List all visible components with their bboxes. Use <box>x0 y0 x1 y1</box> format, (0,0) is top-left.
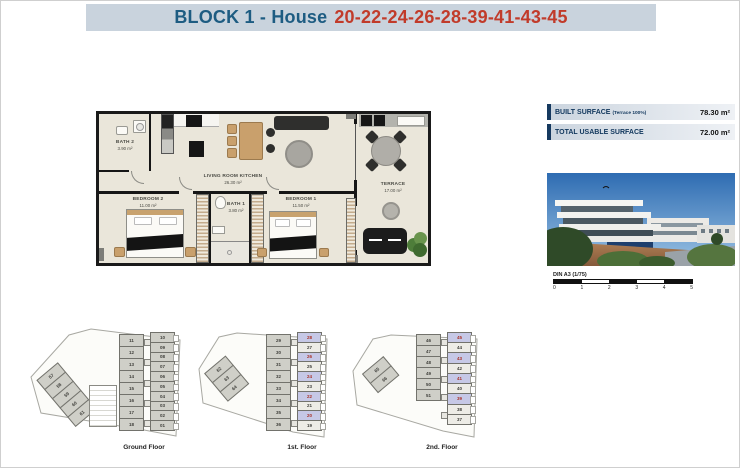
unit-51: 51 <box>416 389 441 401</box>
bed <box>126 209 184 258</box>
terrace-panel <box>397 116 425 126</box>
washer-icon <box>133 120 146 133</box>
page-title: BLOCK 1 - House <box>174 7 327 28</box>
main-floor-plan: BATH 2 3.90 m² LIVING ROOM KITCHEN 26.30… <box>96 111 431 266</box>
garage-ramp <box>89 385 117 427</box>
dining-chair <box>227 124 237 134</box>
floor-plan-first: 626364 2930313233343536 2827262524232221… <box>197 327 347 457</box>
header-bar: BLOCK 1 - House 20-22-24-26-28-39-41-43-… <box>86 4 656 31</box>
surface-label: BUILT SURFACE (Terrace 100%) <box>555 109 646 116</box>
scale-segment <box>637 280 665 283</box>
pillow <box>134 217 152 225</box>
shower-drain <box>227 250 232 255</box>
bath-sink-icon <box>212 226 225 234</box>
building-photo <box>547 173 735 266</box>
wall <box>149 114 151 171</box>
surface-row-usable: TOTAL USABLE SURFACE 72.00 m² <box>547 124 735 140</box>
dining-chair <box>227 136 237 146</box>
scale-segment <box>554 280 582 283</box>
dining-chair <box>266 144 275 153</box>
room-area: 3.90 m² <box>103 146 147 151</box>
pillow <box>159 217 177 225</box>
room-area: 11.00 m² <box>125 203 171 208</box>
floor-plan-ground: 5758596061 1112131415161718 100908070605… <box>29 327 191 457</box>
unit-19: 19 <box>297 420 322 431</box>
dining-chair <box>227 148 237 158</box>
scale-tick: 0 <box>553 285 556 291</box>
headboard <box>127 210 183 215</box>
sink-icon <box>116 126 128 135</box>
scale-tick: 3 <box>635 285 638 291</box>
terrace-pouf <box>382 202 400 220</box>
room-name: LIVING ROOM KITCHEN <box>203 174 263 180</box>
scale-tick: 2 <box>608 285 611 291</box>
room-bath2: BATH 2 3.90 m² <box>103 140 147 151</box>
bed-throw <box>126 234 184 251</box>
sofa-cushion-line <box>388 239 401 241</box>
scale-segment <box>582 280 610 283</box>
wall <box>279 191 356 194</box>
floor-label: Ground Floor <box>99 444 189 451</box>
pillar <box>346 114 356 119</box>
terrace-table-set <box>367 132 405 170</box>
plant-icon <box>405 230 429 258</box>
room-area: 11.50 m² <box>277 203 325 208</box>
door-arc <box>266 177 279 190</box>
round-table <box>285 140 313 168</box>
unit-column-right: 454443424140393837 <box>447 333 472 425</box>
door-arc <box>179 177 192 190</box>
ac-unit-icon <box>374 115 385 126</box>
unit-column-left: 464748495051 <box>416 335 441 401</box>
sofa-cushion-line <box>369 239 382 241</box>
unit-18: 18 <box>119 418 144 431</box>
room-bedroom1: BEDROOM 1 11.50 m² <box>277 197 325 208</box>
floor-label: 1st. Floor <box>257 444 347 451</box>
pillow <box>275 219 290 227</box>
scale-bar: DIN A3 (1/75) 0 1 2 3 4 5 <box>553 272 693 291</box>
room-area: 26.30 m² <box>203 180 263 185</box>
room-area: 3.80 m² <box>221 208 251 213</box>
surface-label-note: (Terrace 100%) <box>612 111 646 116</box>
room-terrace: TERRACE 17.00 m² <box>371 182 415 193</box>
unit-column-left: 1112131415161718 <box>119 335 144 431</box>
scale-tick: 4 <box>663 285 666 291</box>
nightstand <box>185 247 196 257</box>
scale-segment <box>609 280 637 283</box>
floor-label: 2nd. Floor <box>397 444 487 451</box>
scale-segment <box>664 280 692 283</box>
wardrobe <box>196 194 209 263</box>
kitchen-island <box>189 141 204 157</box>
pillar <box>99 248 104 261</box>
shower <box>211 241 249 261</box>
room-living: LIVING ROOM KITCHEN 26.30 m² <box>203 174 263 185</box>
terrace-table <box>371 136 401 166</box>
scale-tick: 5 <box>690 285 693 291</box>
wardrobe <box>346 198 356 263</box>
nightstand <box>319 248 329 257</box>
scale-segments <box>553 279 693 284</box>
wall <box>99 170 129 172</box>
ac-unit-icon <box>361 115 372 126</box>
surface-label: TOTAL USABLE SURFACE <box>555 129 644 136</box>
terrace-sofa <box>363 228 407 254</box>
surface-label-text: TOTAL USABLE SURFACE <box>555 129 644 136</box>
bed-throw <box>269 235 317 251</box>
washer-drum <box>136 123 144 131</box>
unit-36: 36 <box>266 418 291 431</box>
unit-column-left: 2930313233343536 <box>266 335 291 431</box>
headboard <box>270 212 316 217</box>
door-arc <box>131 171 144 184</box>
plan-sheet: BLOCK 1 - House 20-22-24-26-28-39-41-43-… <box>0 0 740 468</box>
unit-column-right: 28272625242322212019 <box>297 333 322 431</box>
kitchen-tall-units <box>161 114 174 154</box>
room-area: 17.00 m² <box>371 188 415 193</box>
bed <box>269 211 317 259</box>
nightstand <box>257 248 267 257</box>
plant-leaf <box>413 243 427 257</box>
pillow <box>296 219 311 227</box>
scale-label: DIN A3 (1/75) <box>553 272 693 278</box>
room-bath1: BATH 1 3.80 m² <box>221 202 251 213</box>
room-bedroom2: BEDROOM 2 11.00 m² <box>125 197 171 208</box>
scale-tick: 1 <box>580 285 583 291</box>
cooktop-icon <box>186 115 202 127</box>
dining-table <box>239 122 263 160</box>
surface-value: 72.00 m² <box>700 128 730 137</box>
unit-column-right: 10090807060504030201 <box>150 333 175 431</box>
floor-plan-second: 6566 464748495051 454443424140393837 2nd… <box>349 327 499 457</box>
unit-37: 37 <box>447 414 472 425</box>
surface-row-built: BUILT SURFACE (Terrace 100%) 78.30 m² <box>547 104 735 120</box>
nightstand <box>114 247 125 257</box>
unit-01: 01 <box>150 420 175 431</box>
house-numbers: 20-22-24-26-28-39-41-43-45 <box>334 7 567 28</box>
surface-value: 78.30 m² <box>700 108 730 117</box>
surface-label-text: BUILT SURFACE <box>555 109 610 116</box>
dining-chair <box>266 128 275 137</box>
scale-ticks: 0 1 2 3 4 5 <box>553 285 693 291</box>
wall <box>99 191 179 194</box>
sofa <box>274 116 329 130</box>
